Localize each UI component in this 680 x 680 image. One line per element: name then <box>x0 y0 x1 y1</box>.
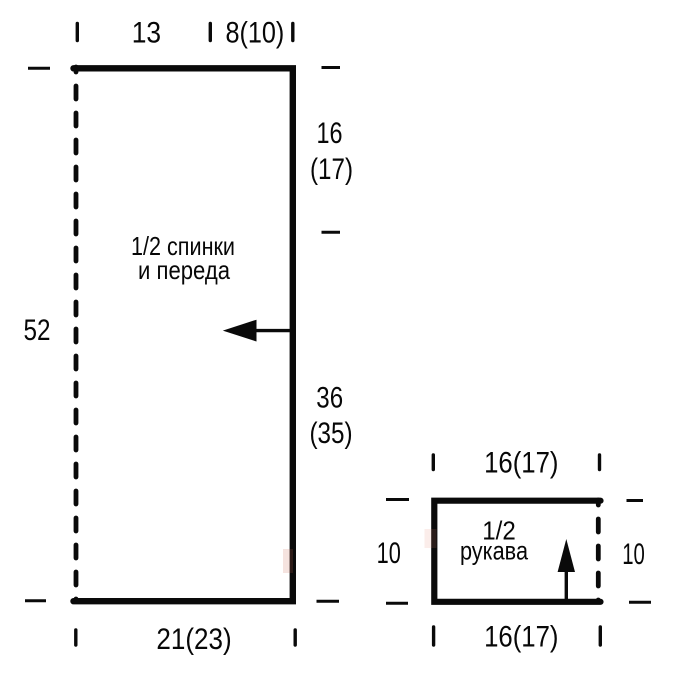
svg-text:52: 52 <box>24 314 51 347</box>
svg-text:36: 36 <box>316 382 343 415</box>
svg-text:13: 13 <box>132 17 161 50</box>
svg-text:21(23): 21(23) <box>156 623 231 656</box>
svg-text:рукава: рукава <box>460 536 528 566</box>
svg-text:16: 16 <box>317 117 343 150</box>
svg-text:(17): (17) <box>310 153 353 186</box>
svg-text:10: 10 <box>377 537 401 570</box>
svg-text:(35): (35) <box>309 417 352 450</box>
svg-text:10: 10 <box>622 538 645 571</box>
svg-text:и переда: и переда <box>138 255 230 285</box>
svg-text:16(17): 16(17) <box>484 621 558 654</box>
svg-text:8(10): 8(10) <box>225 17 284 50</box>
svg-text:16(17): 16(17) <box>484 447 558 480</box>
